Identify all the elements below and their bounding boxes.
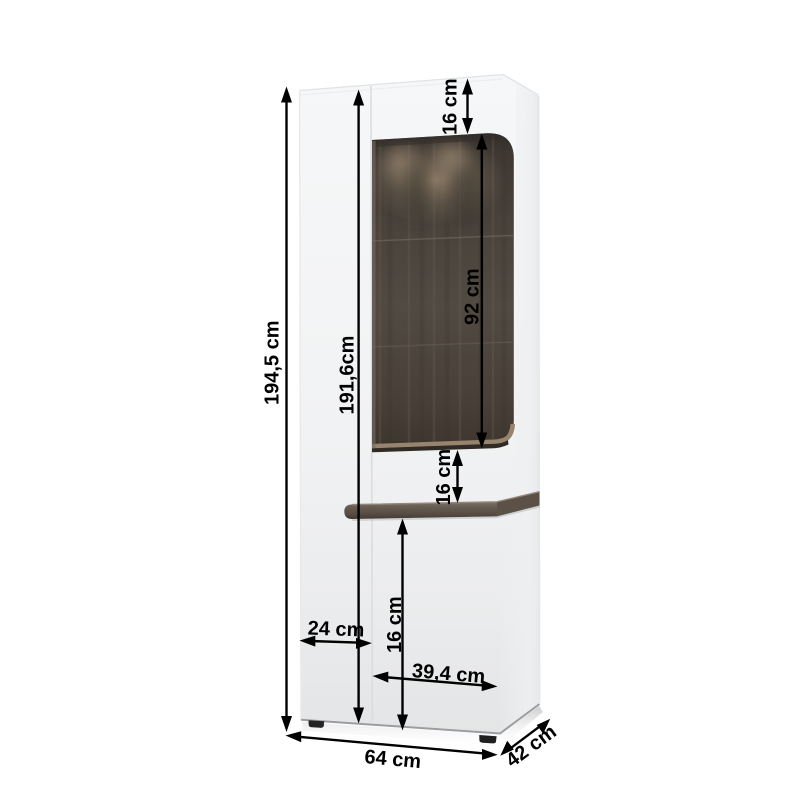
svg-text:16 cm: 16 cm (384, 596, 406, 653)
svg-text:191,6cm: 191,6cm (337, 336, 359, 415)
svg-text:92 cm: 92 cm (462, 268, 484, 325)
svg-text:24 cm: 24 cm (307, 618, 364, 642)
svg-text:16 cm: 16 cm (440, 78, 462, 135)
svg-text:16 cm: 16 cm (433, 449, 455, 506)
svg-text:194,5 cm: 194,5 cm (262, 320, 284, 405)
